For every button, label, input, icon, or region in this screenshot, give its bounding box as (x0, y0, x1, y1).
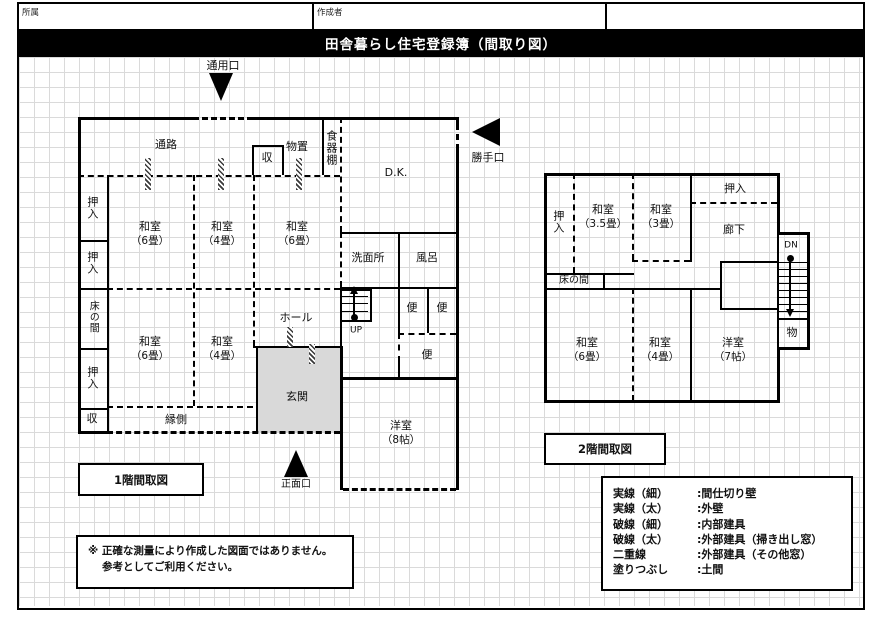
room-label-bath: 風呂 (416, 251, 438, 265)
floor1-caption-box: 1階間取図 (78, 463, 204, 496)
door-hatch (287, 327, 293, 347)
wall (78, 408, 109, 410)
room-label-closet-3: 押入 (85, 366, 99, 390)
partition-dashed (398, 333, 456, 335)
wall (544, 173, 780, 176)
room-label-washroom: 洗面所 (352, 251, 385, 265)
front-entrance-arrow-icon (284, 450, 308, 477)
wall (78, 431, 109, 434)
wall (253, 117, 459, 120)
wall (78, 117, 81, 434)
wall (398, 362, 400, 377)
partition-dashed (632, 173, 634, 260)
partition-dashed (398, 333, 400, 362)
wall (777, 232, 810, 235)
stair-tread (779, 304, 807, 305)
room-label-closet-top: 収 (262, 151, 273, 165)
room-label-washitsu-4-top: 和室（4畳） (203, 220, 241, 248)
legend-row: 実線（太）:外壁 (613, 501, 851, 516)
room-label-closet-1: 押入 (85, 196, 99, 220)
legend-row: 破線（細）:内部建具 (613, 517, 851, 532)
header-cell-divider-2 (605, 2, 607, 29)
partition-dashed (340, 117, 342, 232)
wall (252, 145, 283, 147)
wall (807, 232, 810, 350)
room-label-corridor: 廊下 (723, 223, 745, 237)
partition-dashed (193, 175, 195, 406)
wall (720, 261, 722, 308)
stairs-up-label: UP (350, 325, 362, 336)
wall (456, 117, 459, 124)
room-label-yoshitsu-7: 洋室（7帖） (714, 336, 752, 364)
wall-sliding-door (343, 488, 456, 491)
stair-arrow-line (789, 258, 791, 310)
header-cell-divider-1 (312, 2, 314, 29)
wall (398, 289, 400, 333)
wall (456, 150, 459, 490)
wall (107, 175, 109, 433)
wall-sliding-door (107, 431, 340, 434)
room-label-washitsu-35: 和室（3.5畳） (579, 203, 627, 231)
room-label-storage-2f: 物 (787, 326, 798, 340)
author-field-label: 作成者 (317, 6, 343, 18)
door-hatch (296, 158, 302, 190)
legend-row: 二重線:外部建具（その他窓） (613, 547, 851, 562)
wall (253, 346, 342, 348)
floor2-caption: 2階間取図 (578, 441, 632, 457)
room-label-closet-2: 押入 (85, 251, 99, 275)
wall (398, 232, 400, 287)
stair-tread (779, 262, 807, 263)
wall-sliding-door (193, 117, 253, 120)
disclaimer-note-box: ※ 正確な測量により作成した図面ではありません。 参考としてご利用ください。 (76, 535, 354, 589)
affiliation-field-label: 所属 (22, 6, 39, 18)
partition-dashed (107, 288, 340, 290)
stair-arrow-dot (351, 314, 358, 321)
wall (282, 145, 284, 175)
wall (720, 261, 779, 263)
wall (78, 288, 109, 290)
room-label-washitsu-6-2f: 和室（6畳） (568, 336, 606, 364)
note-line-1: ※ 正確な測量により作成した図面ではありません。 (88, 543, 352, 559)
wall (252, 145, 254, 175)
room-label-yoshitsu-8: 洋室（8帖） (382, 419, 420, 447)
wall (340, 377, 459, 380)
wall (777, 347, 780, 403)
title-bar: 田舎暮らし住宅登録簿（間取り図） (17, 29, 865, 57)
room-label-toilet-1: 便 (407, 301, 418, 315)
document-page: 所属 作成者 田舎暮らし住宅登録簿（間取り図） (0, 0, 892, 632)
stair-tread (779, 269, 807, 270)
legend-box: 実線（細）:間仕切り壁 実線（太）:外壁 破線（細）:内部建具 破線（太）:外部… (601, 476, 853, 591)
room-label-hall: ホール (280, 311, 313, 325)
wall (78, 348, 109, 350)
partition-dashed (340, 232, 342, 287)
room-label-cupboard: 食器棚 (324, 130, 338, 166)
partition-dashed (632, 260, 690, 262)
room-label-washitsu-3: 和室（3畳） (642, 203, 680, 231)
wall-kitchen-door (456, 124, 459, 150)
service-entrance-arrow-icon (209, 73, 233, 101)
door-hatch (309, 344, 315, 364)
partition-dashed (253, 175, 255, 346)
wall (78, 117, 193, 120)
room-label-genkan: 玄関 (286, 390, 308, 404)
wall (690, 173, 692, 262)
wall (690, 288, 692, 403)
up-arrowhead-icon (350, 286, 358, 294)
wall (256, 346, 258, 434)
room-label-closet-bottom: 収 (87, 412, 98, 426)
room-label-dk: D.K. (385, 166, 408, 180)
wall (777, 318, 808, 320)
page-title: 田舎暮らし住宅登録簿（間取り図） (325, 33, 557, 53)
room-label-storage-room: 物置 (286, 140, 308, 154)
wall (544, 400, 780, 403)
door-hatch (218, 158, 224, 190)
note-line-2: 参考としてご利用ください。 (88, 559, 352, 575)
room-label-washitsu-6-right: 和室（6畳） (278, 220, 316, 248)
stair-tread (779, 283, 807, 284)
down-arrowhead-icon (786, 309, 794, 317)
stairs-down-label: DN (784, 240, 798, 251)
front-entrance-label: 正面口 (281, 479, 311, 492)
legend-row: 実線（細）:間仕切り壁 (613, 486, 851, 501)
room-label-toilet-2: 便 (437, 301, 448, 315)
room-label-tokonoma: 床の間 (86, 301, 99, 334)
legend-row: 塗りつぶし:土間 (613, 562, 851, 577)
room-label-washitsu-6-bottom: 和室（6畳） (131, 335, 169, 363)
partition-dashed (690, 202, 777, 204)
floor1-caption: 1階間取図 (114, 472, 168, 488)
room-label-washitsu-4-2f: 和室（4畳） (641, 336, 679, 364)
wall (777, 347, 810, 350)
wall (720, 308, 779, 310)
partition-dashed (632, 288, 634, 401)
stair-tread (779, 297, 807, 298)
room-label-engawa: 縁側 (165, 413, 187, 427)
room-label-closet-top: 押入 (724, 182, 746, 196)
wall (427, 289, 429, 333)
door-hatch (145, 158, 151, 190)
room-label-washitsu-6-top: 和室（6畳） (131, 220, 169, 248)
room-label-tokonoma-2f: 床の間 (559, 275, 589, 288)
floor2-caption-box: 2階間取図 (544, 433, 666, 465)
wall (78, 240, 109, 242)
wall (340, 346, 343, 490)
room-label-passage: 通路 (155, 138, 177, 152)
room-label-washitsu-4-bottom: 和室（4畳） (203, 335, 241, 363)
stair-tread (779, 276, 807, 277)
legend-row: 破線（太）:外部建具（掃き出し窓） (613, 532, 851, 547)
kitchen-entrance-label: 勝手口 (472, 151, 505, 165)
kitchen-entrance-arrow-icon (472, 118, 500, 146)
stair-tread (779, 290, 807, 291)
wall (777, 173, 780, 234)
partition-dashed (573, 173, 575, 273)
service-entrance-label: 通用口 (207, 59, 240, 73)
room-label-closet-left: 押入 (551, 210, 565, 234)
partition-dashed (107, 406, 253, 408)
wall (544, 273, 634, 275)
room-label-toilet-3: 便 (422, 348, 433, 362)
